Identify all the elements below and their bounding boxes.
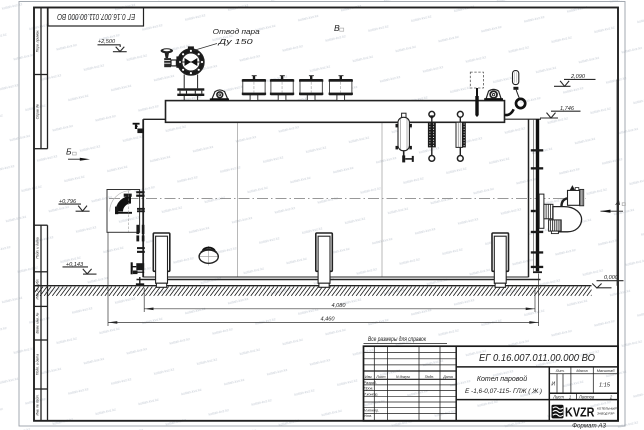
- svg-text:Н.контр.: Н.контр.: [364, 408, 379, 412]
- svg-text:0,000: 0,000: [604, 275, 619, 281]
- svg-text:Перв. примен.: Перв. примен.: [36, 30, 40, 53]
- svg-text:Все размеры для справок: Все размеры для справок: [368, 336, 427, 343]
- svg-text:Утв.: Утв.: [364, 414, 372, 418]
- svg-text:1: 1: [569, 395, 571, 400]
- svg-text:Т.контр.: Т.контр.: [364, 392, 379, 396]
- svg-text:4,460: 4,460: [321, 316, 336, 322]
- svg-text:KVZR: KVZR: [565, 404, 595, 419]
- svg-text:В: В: [334, 23, 340, 33]
- svg-text:Взам. инв. №: Взам. инв. №: [36, 312, 40, 333]
- svg-text:Подп.: Подп.: [425, 375, 435, 379]
- svg-text:Б: Б: [66, 147, 72, 157]
- svg-text:И: И: [551, 382, 555, 388]
- svg-text:Ду 150: Ду 150: [217, 37, 252, 46]
- svg-text:Подп. и дата: Подп. и дата: [36, 354, 40, 375]
- svg-text:Лист: Лист: [375, 375, 385, 379]
- svg-text:Лист: Лист: [552, 395, 564, 400]
- svg-text:Формат А3: Формат А3: [572, 423, 606, 430]
- svg-text:Отвод пара: Отвод пара: [213, 27, 260, 36]
- svg-text:ЕГ 0.16.007.011.00.000 ВО: ЕГ 0.16.007.011.00.000 ВО: [57, 12, 135, 21]
- svg-text:4,080: 4,080: [332, 303, 347, 309]
- svg-text:Лит.: Лит.: [555, 369, 565, 373]
- svg-text:Разраб.: Разраб.: [364, 381, 377, 385]
- svg-text:ЗАВОД РЗР: ЗАВОД РЗР: [597, 412, 615, 416]
- svg-text:+0,143: +0,143: [66, 262, 84, 268]
- svg-text:Изм.: Изм.: [365, 375, 373, 379]
- svg-text:N докум.: N докум.: [396, 375, 411, 379]
- svg-text:А: А: [615, 200, 621, 207]
- svg-text:Пров.: Пров.: [364, 387, 373, 391]
- svg-text:КОТЕЛЬНЫЙ: КОТЕЛЬНЫЙ: [597, 406, 617, 410]
- svg-text:Листов: Листов: [578, 395, 595, 400]
- svg-text:Масштаб: Масштаб: [597, 369, 616, 373]
- svg-text:Котел паровой: Котел паровой: [477, 375, 527, 383]
- svg-text:1,746: 1,746: [560, 106, 575, 112]
- svg-text:ЕГ 0.16.007.011.00.000 ВО: ЕГ 0.16.007.011.00.000 ВО: [479, 353, 595, 364]
- svg-text:1:15: 1:15: [599, 382, 611, 388]
- svg-text:2,090: 2,090: [570, 74, 586, 80]
- svg-text:+0,796: +0,796: [59, 199, 77, 205]
- svg-text:Подп. и дата: Подп. и дата: [36, 237, 40, 258]
- svg-text:Инв. № подл.: Инв. № подл.: [36, 394, 40, 415]
- svg-text:Масса: Масса: [576, 369, 587, 373]
- svg-text:Справ. №: Справ. №: [36, 103, 40, 119]
- svg-text:Е -1,6-0,07-115- ГЛЖ ( Ж ): Е -1,6-0,07-115- ГЛЖ ( Ж ): [465, 388, 542, 395]
- svg-text:+2,500: +2,500: [98, 39, 116, 45]
- svg-text:Дата: Дата: [442, 375, 452, 379]
